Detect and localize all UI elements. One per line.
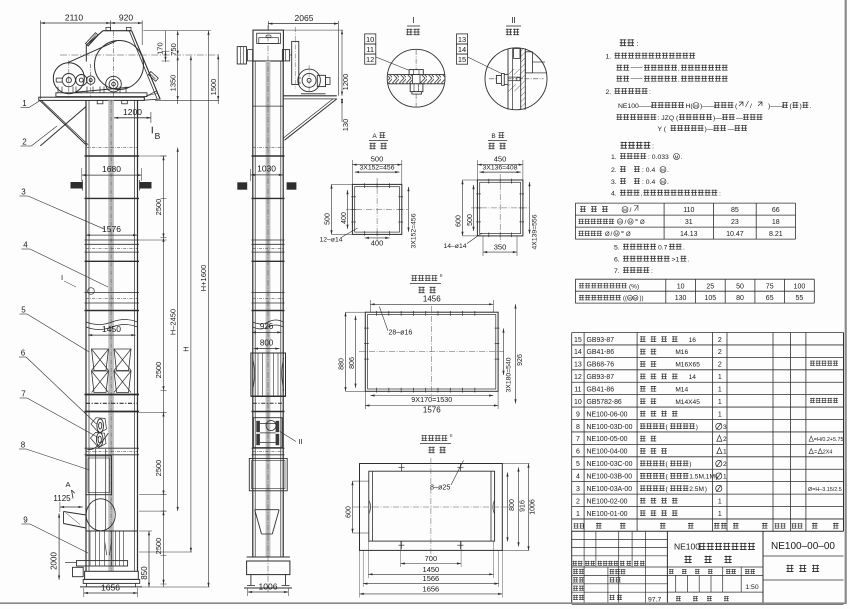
- svg-text:15: 15: [574, 337, 582, 344]
- svg-text:2500: 2500: [154, 460, 163, 477]
- svg-text:130: 130: [341, 119, 350, 132]
- svg-text:400: 400: [341, 212, 348, 224]
- svg-text:3X136=408: 3X136=408: [483, 165, 518, 172]
- svg-text:7: 7: [21, 390, 26, 399]
- svg-text:——: ——: [631, 66, 643, 72]
- svg-text:926: 926: [517, 354, 524, 366]
- svg-text:850: 850: [140, 566, 149, 580]
- svg-text:,: ,: [641, 191, 643, 198]
- svg-text:1:50: 1:50: [745, 584, 758, 591]
- svg-text:)——: )——: [768, 103, 784, 110]
- svg-text:1.5M,1M: 1.5M,1M: [689, 474, 715, 481]
- svg-text:.: .: [667, 179, 669, 186]
- svg-text:1200: 1200: [341, 74, 350, 91]
- svg-text:2: 2: [718, 349, 722, 356]
- svg-text:28–ø16: 28–ø16: [389, 330, 413, 337]
- svg-text:M: M: [661, 179, 665, 184]
- svg-text:1: 1: [718, 399, 722, 406]
- svg-text:.: .: [681, 154, 683, 161]
- svg-text:/: /: [611, 231, 613, 238]
- svg-text:: 0.033: : 0.033: [648, 154, 669, 161]
- svg-text:1: 1: [718, 387, 722, 394]
- svg-text::: :: [637, 39, 639, 48]
- svg-text:M: M: [623, 207, 627, 212]
- svg-text:110: 110: [683, 207, 694, 214]
- svg-text:6: 6: [21, 349, 26, 358]
- svg-text:1566: 1566: [423, 574, 440, 583]
- svg-text:=: =: [814, 450, 817, 456]
- svg-text:I: I: [412, 16, 414, 25]
- svg-text:I: I: [61, 273, 63, 282]
- svg-text:): ): [689, 461, 691, 468]
- svg-text:450: 450: [494, 155, 507, 164]
- svg-text:0.7: 0.7: [658, 245, 668, 252]
- svg-text::: :: [649, 89, 651, 96]
- svg-text:GB41-86: GB41-86: [587, 349, 615, 356]
- svg-text:): ): [705, 486, 707, 493]
- svg-text:II: II: [440, 273, 443, 278]
- svg-text:600: 600: [456, 215, 463, 227]
- svg-text:NE100–00–00: NE100–00–00: [771, 541, 835, 552]
- svg-text:Ø: Ø: [640, 220, 645, 226]
- svg-text:2.: 2.: [611, 167, 617, 174]
- svg-text:4: 4: [23, 241, 28, 250]
- svg-text:Ø: Ø: [626, 232, 631, 238]
- svg-text:4: 4: [576, 474, 580, 481]
- svg-text:GB93-87: GB93-87: [587, 374, 615, 381]
- svg-text:=: =: [635, 218, 638, 224]
- svg-text::: :: [719, 191, 721, 198]
- svg-text:Y (: Y (: [658, 126, 667, 133]
- svg-text:M16: M16: [675, 349, 688, 356]
- svg-text:—: —: [736, 115, 743, 122]
- svg-text:—: —: [728, 126, 735, 133]
- svg-text:(%): (%): [629, 283, 639, 290]
- svg-text:6.: 6.: [614, 257, 620, 264]
- svg-text:Ø: Ø: [605, 232, 610, 238]
- svg-text:926: 926: [260, 322, 274, 331]
- svg-text:NE100-02-00: NE100-02-00: [587, 498, 628, 505]
- svg-text:: JZQ (: : JZQ (: [658, 115, 680, 122]
- svg-text:1: 1: [723, 449, 727, 456]
- svg-text:): ): [696, 424, 698, 431]
- svg-text:3: 3: [576, 486, 580, 493]
- svg-text:14.13: 14.13: [680, 231, 698, 238]
- svg-text:3X180=540: 3X180=540: [505, 357, 512, 392]
- svg-text:H: H: [182, 346, 191, 351]
- svg-text:100: 100: [794, 283, 806, 290]
- svg-text:5: 5: [21, 306, 26, 315]
- svg-text:1576: 1576: [102, 224, 121, 234]
- svg-text:/: /: [625, 219, 627, 226]
- svg-text:12: 12: [574, 374, 582, 381]
- svg-text:1.: 1.: [611, 154, 617, 161]
- svg-text:=: =: [621, 230, 624, 236]
- svg-text:NE100-03D-00: NE100-03D-00: [587, 424, 633, 431]
- svg-text:.: .: [683, 245, 685, 252]
- svg-text:85: 85: [731, 207, 739, 214]
- svg-text:((: ((: [623, 296, 627, 302]
- svg-text:880: 880: [339, 358, 346, 370]
- svg-text:)——: )——: [700, 103, 716, 110]
- svg-text:1680: 1680: [102, 164, 121, 174]
- svg-text:350: 350: [494, 243, 507, 252]
- svg-text:)—: )—: [705, 126, 714, 133]
- svg-text:2: 2: [718, 362, 722, 369]
- svg-text:920: 920: [119, 13, 133, 23]
- svg-text:NE100-04-00: NE100-04-00: [587, 449, 628, 456]
- svg-text:2.5M: 2.5M: [689, 486, 704, 493]
- svg-text:2500: 2500: [154, 362, 163, 379]
- svg-text:12: 12: [366, 55, 374, 64]
- svg-text:1: 1: [718, 411, 722, 418]
- svg-text:2065: 2065: [295, 13, 314, 23]
- svg-text:750: 750: [169, 43, 178, 56]
- svg-text:1656: 1656: [101, 583, 120, 593]
- svg-text:916: 916: [520, 500, 527, 512]
- svg-text:50: 50: [736, 283, 744, 290]
- svg-text:5: 5: [576, 461, 580, 468]
- svg-text:1200: 1200: [123, 107, 142, 117]
- svg-text:14–ø14: 14–ø14: [443, 243, 466, 250]
- svg-text:2.: 2.: [606, 89, 612, 96]
- svg-text:: 0.4: : 0.4: [642, 179, 655, 186]
- svg-text:10: 10: [366, 35, 374, 44]
- svg-text:14: 14: [574, 349, 582, 356]
- svg-text:II: II: [298, 437, 302, 446]
- svg-text:31: 31: [685, 219, 693, 226]
- svg-text:11: 11: [366, 45, 374, 54]
- svg-text:9X170=1530: 9X170=1530: [411, 395, 452, 404]
- svg-text:4X139=556: 4X139=556: [531, 214, 538, 249]
- svg-text:806: 806: [349, 357, 356, 369]
- svg-text:500: 500: [325, 213, 332, 225]
- svg-text:.: .: [667, 167, 669, 174]
- svg-text:2: 2: [22, 138, 27, 147]
- svg-text:170: 170: [156, 42, 165, 55]
- svg-text:M16X65: M16X65: [675, 362, 700, 369]
- svg-text:8: 8: [576, 424, 580, 431]
- svg-text:II: II: [450, 433, 453, 438]
- svg-text:18: 18: [772, 219, 780, 226]
- svg-text:M: M: [661, 167, 665, 172]
- svg-text:6: 6: [576, 449, 580, 456]
- svg-text:65: 65: [766, 295, 774, 302]
- svg-text:NE100-03A-00: NE100-03A-00: [587, 486, 633, 493]
- svg-text:1450: 1450: [102, 324, 121, 334]
- svg-text:2: 2: [576, 498, 580, 505]
- svg-text:4.: 4.: [611, 191, 617, 198]
- svg-text:700: 700: [425, 554, 438, 563]
- svg-text:1450: 1450: [423, 565, 440, 574]
- svg-text:25: 25: [706, 283, 714, 290]
- svg-text:1: 1: [718, 374, 722, 381]
- svg-text:M: M: [628, 296, 631, 300]
- svg-text:NE100-03C-00: NE100-03C-00: [587, 461, 633, 468]
- svg-text:10: 10: [574, 399, 582, 406]
- svg-text:NE100-03B-00: NE100-03B-00: [587, 474, 633, 481]
- svg-text:66: 66: [772, 207, 780, 214]
- svg-text:NE100-01-00: NE100-01-00: [587, 511, 628, 518]
- svg-text:)—: )—: [713, 115, 722, 122]
- svg-text:1125: 1125: [53, 494, 71, 503]
- svg-text:NE100: NE100: [674, 542, 700, 552]
- svg-text:400: 400: [371, 238, 384, 247]
- svg-text:1: 1: [723, 474, 727, 481]
- svg-text:1006: 1006: [259, 582, 278, 592]
- svg-text:5.: 5.: [614, 245, 620, 252]
- svg-text:16: 16: [689, 337, 697, 344]
- svg-text:>1: >1: [672, 257, 680, 264]
- svg-text:11: 11: [574, 387, 581, 394]
- svg-text:M14X45: M14X45: [675, 399, 700, 406]
- svg-text:1.: 1.: [606, 54, 612, 61]
- svg-text:2110: 2110: [65, 13, 84, 23]
- svg-text::: :: [652, 142, 654, 151]
- svg-text:Ø=H–3.15/2.5: Ø=H–3.15/2.5: [808, 487, 842, 493]
- svg-text:23: 23: [731, 219, 739, 226]
- svg-text:NE100-05-00: NE100-05-00: [587, 436, 628, 443]
- svg-text:14: 14: [689, 374, 697, 381]
- svg-text:15: 15: [458, 55, 466, 64]
- svg-text:M: M: [675, 154, 679, 159]
- svg-text:1656: 1656: [423, 584, 440, 593]
- svg-text:1350: 1350: [169, 75, 178, 92]
- svg-text:3: 3: [723, 424, 727, 431]
- svg-text:13: 13: [574, 362, 582, 369]
- svg-text:105: 105: [704, 295, 716, 302]
- svg-text:)): )): [640, 296, 644, 302]
- svg-text:800: 800: [260, 338, 274, 347]
- svg-text:80: 80: [736, 295, 744, 302]
- svg-text:10.47: 10.47: [726, 231, 744, 238]
- svg-text:1: 1: [718, 498, 722, 505]
- svg-text:2000: 2000: [50, 552, 59, 570]
- svg-text::: :: [651, 268, 653, 275]
- svg-text:1456: 1456: [423, 294, 441, 303]
- svg-text:7.: 7.: [614, 268, 620, 275]
- svg-text:A: A: [372, 133, 377, 140]
- svg-text:13: 13: [458, 35, 466, 44]
- svg-text:M14: M14: [675, 387, 688, 394]
- svg-text:GB68-76: GB68-76: [587, 362, 615, 369]
- svg-text:2X4: 2X4: [823, 450, 833, 456]
- svg-text:H(: H(: [686, 103, 694, 110]
- svg-text:14: 14: [458, 45, 466, 54]
- svg-text:GB93-87: GB93-87: [587, 337, 615, 344]
- svg-text:1576: 1576: [423, 405, 441, 414]
- svg-text:H+1600: H+1600: [199, 265, 208, 291]
- svg-text:2500: 2500: [154, 199, 163, 216]
- svg-text:NE100——: NE100——: [618, 103, 653, 110]
- svg-text:1500: 1500: [209, 79, 218, 96]
- svg-text:GB5782-86: GB5782-86: [587, 399, 622, 406]
- svg-text:): ): [800, 103, 802, 110]
- svg-text:500: 500: [371, 155, 384, 164]
- svg-text:7: 7: [576, 436, 580, 443]
- svg-text:1: 1: [22, 99, 27, 108]
- svg-text:2: 2: [723, 461, 727, 468]
- svg-text:: 0.4: : 0.4: [642, 167, 655, 174]
- svg-text:500: 500: [467, 214, 474, 226]
- svg-text:1006: 1006: [530, 499, 537, 515]
- svg-text:H–2450: H–2450: [168, 309, 177, 335]
- svg-text:=H/0.2+5.75: =H/0.2+5.75: [814, 437, 844, 443]
- svg-text:130: 130: [675, 295, 687, 302]
- svg-text:2: 2: [723, 436, 727, 443]
- svg-text:8.21: 8.21: [769, 231, 783, 238]
- svg-text:2: 2: [718, 337, 722, 344]
- svg-text:1: 1: [718, 511, 722, 518]
- svg-text:3.: 3.: [611, 179, 617, 186]
- svg-text:3X152=456: 3X152=456: [360, 165, 395, 172]
- svg-text:B: B: [491, 133, 495, 140]
- svg-text:3: 3: [21, 188, 26, 197]
- svg-text:75: 75: [766, 283, 774, 290]
- svg-text:8–ø25: 8–ø25: [430, 483, 450, 492]
- svg-text:1: 1: [576, 511, 580, 518]
- svg-text:NE100-06-00: NE100-06-00: [587, 411, 628, 418]
- svg-text:/: /: [630, 207, 632, 214]
- svg-text:1030: 1030: [257, 164, 276, 174]
- svg-text:600: 600: [346, 506, 353, 518]
- svg-text:B: B: [155, 131, 161, 141]
- svg-text:——: ——: [631, 77, 643, 83]
- svg-text:9: 9: [23, 516, 28, 525]
- svg-text:10: 10: [677, 283, 685, 290]
- svg-text:A: A: [65, 480, 70, 489]
- svg-text:55: 55: [796, 295, 804, 302]
- svg-text:12–ø14: 12–ø14: [319, 237, 342, 244]
- svg-text:9: 9: [576, 411, 580, 418]
- svg-text:800: 800: [509, 499, 516, 511]
- svg-text:8: 8: [21, 441, 26, 450]
- svg-text:.: .: [688, 257, 690, 264]
- svg-text:3X152=456: 3X152=456: [411, 213, 418, 248]
- svg-text:II: II: [511, 16, 515, 25]
- svg-text:M: M: [694, 103, 698, 108]
- svg-text:/: /: [750, 103, 752, 110]
- svg-text:GB41-86: GB41-86: [587, 387, 615, 394]
- svg-text:.: .: [810, 103, 812, 110]
- svg-text:M: M: [634, 296, 637, 300]
